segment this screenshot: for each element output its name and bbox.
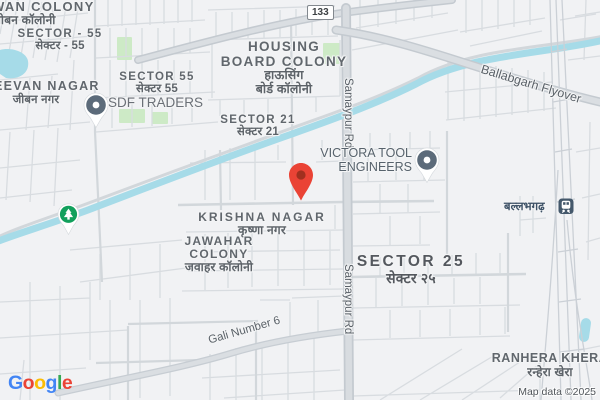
area-label-sector-25: SECTOR 25 सेक्टर २५ bbox=[357, 254, 465, 286]
sdf-traders-pin[interactable] bbox=[83, 92, 109, 134]
red-map-pin-icon bbox=[288, 162, 314, 202]
area-label-sector-55: SECTOR 55 सेक्टर 55 bbox=[119, 71, 194, 96]
train-icon bbox=[558, 198, 574, 215]
google-logo-letter: g bbox=[46, 372, 57, 395]
route-badge-133: 133 bbox=[307, 5, 334, 20]
google-logo-letter: o bbox=[34, 372, 45, 395]
ballabhgarh-station-icon[interactable] bbox=[558, 198, 574, 220]
area-label-housing-board-colony: HOUSING BOARD COLONY हाऊसिंग बोर्ड कॉलोन… bbox=[221, 40, 348, 96]
area-label-sector-55-west: SECTOR - 55 सेक्टर - 55 bbox=[17, 28, 102, 53]
google-logo-letter: e bbox=[62, 372, 72, 395]
google-logo[interactable]: Google bbox=[8, 372, 72, 395]
road-label-samaypur-rd-south: Samaypur Rd bbox=[342, 264, 354, 334]
poi-pin-icon bbox=[414, 147, 440, 184]
tree-pin-icon bbox=[57, 203, 80, 236]
area-label-wan-colony: WAN COLONY जीबन कॉलोनी bbox=[0, 0, 95, 27]
area-label-eevan-nagar: EEVAN NAGAR जीबन नगर bbox=[0, 80, 78, 106]
map-attribution: Map data ©2025 bbox=[518, 386, 596, 398]
victora-tool-label[interactable]: VICTORA TOOL ENGINEERS bbox=[312, 147, 412, 174]
park-pin[interactable] bbox=[57, 203, 80, 241]
area-label-ranhera-khera: RANHERA KHERA रन्हेरा खेरा bbox=[487, 352, 600, 378]
map-viewport[interactable]: WAN COLONY जीबन कॉलोनी SECTOR - 55 सेक्ट… bbox=[0, 0, 600, 400]
area-label-sector-21: SECTOR 21 सेक्टर 21 bbox=[220, 114, 295, 139]
ballabhgarh-station-label[interactable]: बल्लभगढ़ bbox=[504, 201, 545, 213]
google-logo-letter: o bbox=[23, 372, 34, 395]
destination-pin[interactable] bbox=[288, 162, 314, 207]
poi-pin-icon bbox=[83, 92, 109, 129]
area-label-jawahar-colony: JAWAHAR COLONY जवाहर कॉलोनी bbox=[184, 235, 253, 274]
sdf-traders-label[interactable]: SDF TRADERS bbox=[108, 96, 203, 111]
google-logo-letter: G bbox=[8, 372, 23, 395]
road-label-samaypur-rd-north: Samaypur Rd bbox=[342, 78, 354, 148]
victora-tool-pin[interactable] bbox=[414, 147, 440, 189]
